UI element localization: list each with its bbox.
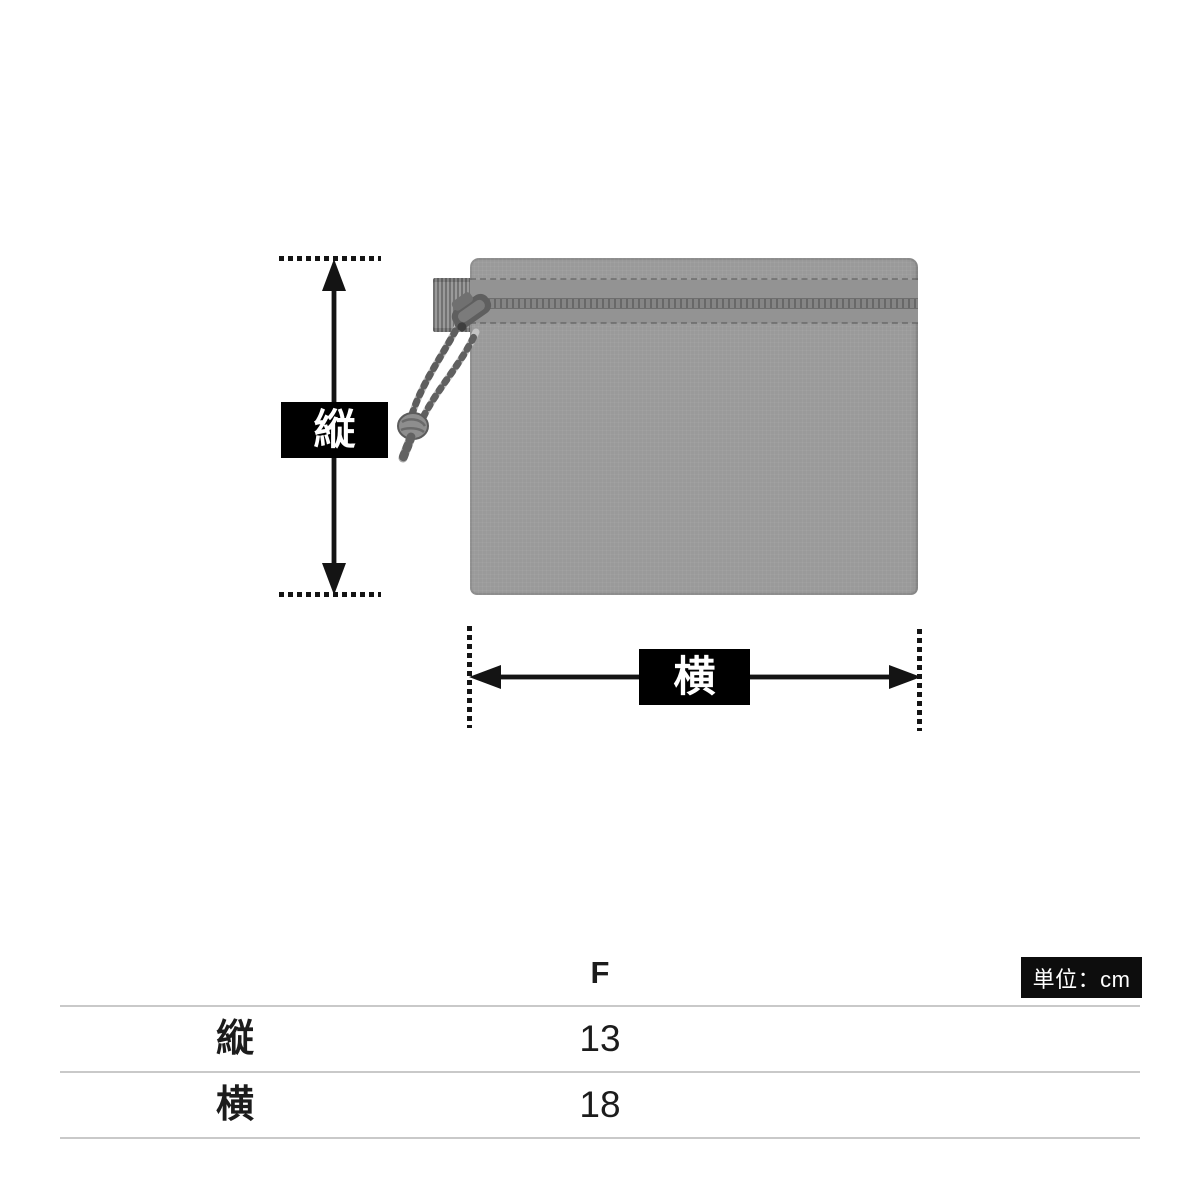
- table-divider: [60, 1137, 1140, 1139]
- table-column-header: F: [500, 940, 700, 1006]
- height-label: 縦: [281, 402, 388, 458]
- width-label-text: 横: [673, 656, 715, 698]
- zipper-pull-cord: [411, 322, 476, 422]
- zipper-slider-and-cord: [390, 280, 520, 480]
- table-row-height-value: 13: [500, 1006, 700, 1072]
- height-label-text: 縦: [313, 409, 355, 451]
- size-spec-page: 縦 横 F 単位：cm 縦 13 横 18: [0, 0, 1200, 1200]
- zipper-stitch-top: [470, 278, 918, 280]
- table-row-height-label: 縦: [135, 1006, 335, 1072]
- width-label: 横: [639, 649, 750, 705]
- cord-knot: [398, 413, 428, 458]
- pouch-body: [470, 258, 918, 595]
- unit-badge: 単位：cm: [1021, 957, 1142, 998]
- zipper-stitch-bottom: [470, 322, 918, 324]
- zipper-slider: [443, 284, 495, 333]
- table-row-width-label: 横: [135, 1072, 335, 1138]
- zipper-coil: [470, 298, 918, 309]
- table-row-width-value: 18: [500, 1072, 700, 1138]
